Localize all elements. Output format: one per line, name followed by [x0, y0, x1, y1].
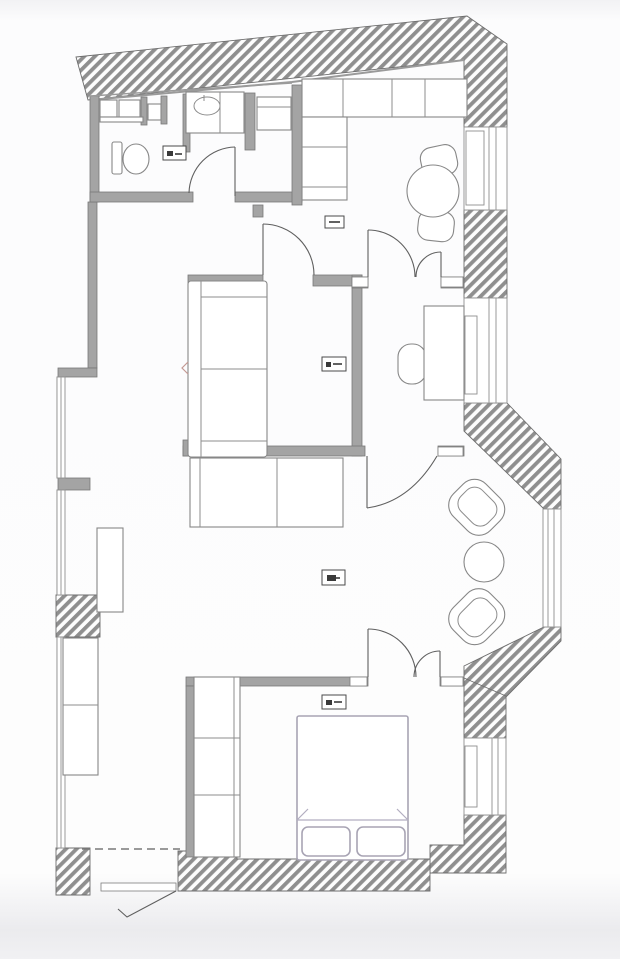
study-door [367, 456, 437, 508]
pillow-right [357, 827, 405, 856]
area-tag-hall-top [325, 216, 344, 228]
hall-radiator [97, 528, 123, 612]
cabinet-front-edge [100, 117, 143, 122]
window-bay-right [543, 509, 561, 627]
wall-bath-left [90, 96, 99, 202]
bedroom-double-door [368, 629, 440, 677]
bay-window-nook [442, 473, 511, 652]
armchair-2 [442, 582, 511, 651]
washer-cabinet-2 [119, 100, 140, 117]
entry-door [82, 849, 180, 917]
living-room-door [263, 224, 314, 275]
armchair-1 [442, 473, 511, 542]
window-bedroom-right [464, 738, 506, 815]
jamb-cap-bedroom-right [441, 677, 463, 686]
vanity-counter [186, 92, 244, 133]
exterior-wall-left-pier [56, 595, 100, 637]
wall-bedroom-left [186, 686, 194, 857]
bedroom [194, 677, 408, 860]
jamb-cap-kitchen-left [352, 277, 368, 287]
desk-chair [398, 344, 426, 384]
storage-closet [257, 97, 291, 130]
window-leaf [465, 316, 477, 394]
toilet-tank [112, 142, 122, 174]
toilet-bowl [123, 144, 149, 174]
wall-left-step [58, 368, 97, 377]
wardrobe [194, 677, 240, 857]
window-leaf [466, 131, 484, 205]
jamb-cap-kitchen-right [441, 277, 463, 287]
kitchen-counter-left-column [302, 117, 347, 200]
floor-plan-drawing [0, 0, 620, 959]
desk [424, 306, 464, 400]
area-tag-bathroom [163, 146, 186, 160]
exterior-wall-right-mid [464, 210, 507, 298]
wall-storage-left [245, 93, 255, 150]
window-kitchen-right [464, 127, 507, 210]
wall-left-chunk [58, 478, 90, 490]
entry-door-leaf [101, 883, 176, 891]
study-nook [398, 306, 464, 400]
hall-side-cabinet [63, 638, 98, 775]
living-room [182, 281, 267, 457]
exterior-wall-bottom-right [430, 815, 506, 873]
area-tag-hall-lower [322, 570, 345, 585]
window-study-right [464, 298, 507, 403]
floor-plan-page [0, 0, 620, 959]
wall-stub-hall [253, 205, 263, 217]
wall-living-right [352, 275, 362, 456]
water-heater-box [148, 104, 161, 120]
pillow-left [302, 827, 350, 856]
round-side-table [464, 542, 504, 582]
hall-low-cabinet [190, 458, 343, 527]
detail-mark [182, 362, 188, 374]
wall-left-upper [88, 202, 97, 368]
exterior-wall-bottom-left-pier [56, 848, 90, 895]
area-tag-bedroom [322, 695, 346, 709]
shelf-cabinet [257, 97, 291, 130]
jamb-cap-study [438, 447, 463, 456]
round-dining-table [407, 165, 459, 217]
bathroom [100, 92, 244, 174]
washer-cabinet-1 [100, 100, 117, 117]
area-tag-living [322, 357, 346, 371]
bathroom-door [189, 147, 235, 196]
kitchen-counter-top-row [302, 79, 467, 117]
jamb-cap-bedroom-left [350, 677, 367, 686]
radiator [465, 746, 477, 807]
wall-bath-partition2 [161, 96, 167, 124]
wall-kitchen-left [292, 85, 302, 205]
wall-bath-bottom-left [90, 192, 193, 202]
